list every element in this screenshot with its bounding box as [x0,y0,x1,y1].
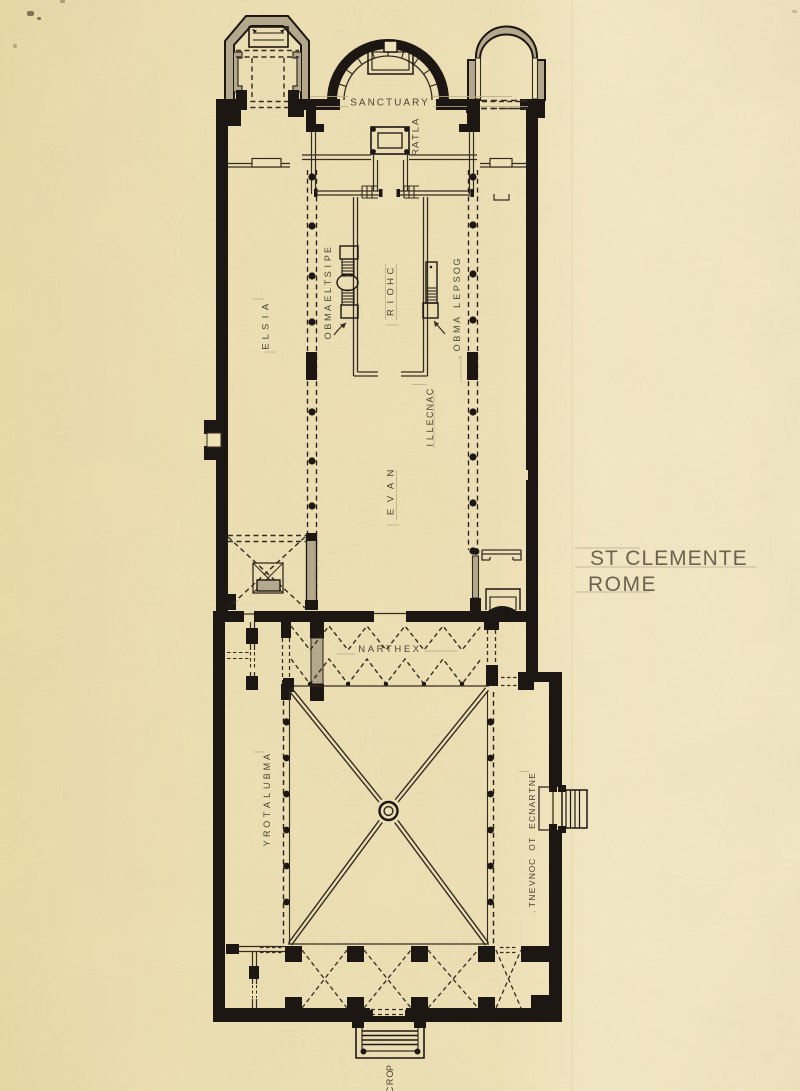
svg-text:O: O [527,865,537,872]
svg-text:V: V [527,880,537,886]
svg-text:C: C [527,859,537,865]
svg-text:P: P [385,1065,395,1071]
svg-text:M: M [323,314,333,322]
svg-text:R: R [262,830,272,837]
svg-text:R: R [385,1078,395,1085]
svg-text:T: T [527,902,537,907]
svg-text:E: E [452,294,462,300]
svg-text:S: S [452,276,462,282]
svg-text:B: B [323,324,333,330]
svg-text:O: O [385,1070,395,1077]
svg-text:A: A [411,118,422,125]
svg-text:S: S [261,324,272,330]
svg-text:B: B [262,773,272,779]
svg-text:I: I [261,316,272,319]
svg-text:A: A [262,754,272,760]
svg-text:M: M [452,326,462,334]
svg-text:T: T [527,838,537,843]
svg-text:N: N [527,895,537,901]
svg-text:P: P [452,285,462,291]
svg-text:E: E [527,887,537,893]
svg-text:T: T [411,134,422,140]
svg-text:B: B [452,336,462,342]
svg-text:E: E [261,343,272,349]
svg-text:C: C [425,388,435,395]
svg-text:O: O [452,344,462,351]
svg-text:G: G [452,258,462,265]
svg-text:E: E [386,509,397,515]
svg-text:O: O [452,267,462,274]
svg-text:N: N [527,809,537,815]
svg-text:A: A [411,141,422,148]
svg-text:I: I [425,444,435,447]
svg-text:U: U [262,783,272,790]
svg-text:I: I [386,301,397,304]
svg-text:L: L [261,334,272,339]
svg-text:N: N [527,873,537,879]
svg-text:A: A [527,801,537,807]
svg-text:M: M [262,763,272,771]
svg-text:A: A [262,802,272,808]
svg-text:L: L [425,427,435,432]
svg-text:Y: Y [262,840,272,846]
svg-text:A: A [261,303,272,310]
svg-text:A: A [452,317,462,323]
svg-text:L: L [425,435,435,440]
svg-text:ROME: ROME [588,573,657,596]
svg-text:T: T [323,279,333,285]
svg-text:L: L [411,127,422,132]
svg-text:E: E [527,823,537,829]
svg-text:R: R [527,794,537,800]
svg-text:E: E [425,419,435,425]
svg-text:NARTHEX: NARTHEX [358,644,421,655]
svg-text:S: S [323,271,333,277]
svg-text:L: L [323,288,333,293]
svg-text:C: C [425,411,435,418]
svg-text:O: O [386,288,397,295]
svg-text:C: C [385,1086,395,1091]
svg-text:N: N [425,404,435,411]
svg-text:T: T [527,788,537,793]
svg-text:L: L [452,303,462,308]
svg-text:R: R [411,149,422,156]
svg-text:V: V [386,495,397,502]
svg-text:E: E [323,296,333,302]
svg-text:E: E [527,773,537,779]
svg-text:A: A [386,482,397,489]
svg-text:E: E [323,247,333,253]
svg-text:L: L [262,793,272,798]
svg-text:A: A [425,397,435,403]
svg-text:N: N [386,469,397,476]
svg-text:O: O [262,821,272,828]
svg-text:.: . [527,911,537,913]
svg-text:C: C [527,816,537,822]
svg-text:O: O [527,844,537,851]
svg-text:T: T [262,811,272,817]
svg-text:SANCTUARY: SANCTUARY [350,98,430,109]
svg-text:R: R [386,309,397,316]
svg-text:I: I [323,265,333,268]
svg-text:ST CLEMENTE: ST CLEMENTE [590,547,748,570]
svg-text:O: O [323,332,333,339]
svg-text:C: C [386,267,397,274]
svg-text:N: N [527,780,537,786]
svg-text:A: A [323,305,333,311]
svg-text:P: P [323,255,333,261]
svg-text:H: H [386,278,397,285]
